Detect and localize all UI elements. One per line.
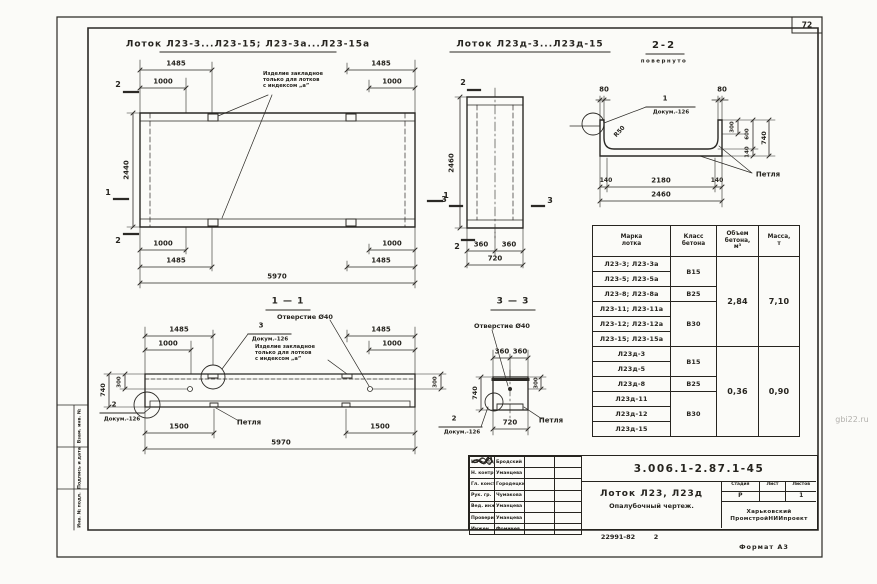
col-header-mass: Масса, т — [759, 226, 800, 257]
dim-label: 740 — [472, 386, 479, 400]
plan-embedded-plates — [208, 114, 356, 226]
document-number: 3.006.1-2.87.1-45 — [581, 456, 816, 482]
dim-label: 2460 — [449, 153, 456, 172]
col-header-volume: Объем бетона, м³ — [717, 226, 759, 257]
callout-doc: Докум.-126 — [653, 110, 689, 116]
dim-label: 1000 — [382, 79, 401, 86]
dim-label: 1485 — [371, 327, 390, 334]
sec11-embedded-note: Изделие закладное только для лотков с ин… — [255, 344, 315, 363]
organization-name: Харьковский ПромстройНИИпроект — [722, 502, 816, 529]
stage-header: Стадия — [722, 482, 760, 491]
callout-number: 2 — [452, 416, 457, 423]
mark-cell: Л23д-15 — [593, 422, 671, 437]
sec33-hole — [508, 387, 512, 391]
class-cell: В15 — [671, 257, 717, 287]
section-mark-3: 3 — [547, 197, 553, 205]
margin-label: Подпись и дата — [79, 447, 84, 489]
margin-label: Инв. № подл. — [79, 492, 84, 528]
table-row: Л23-3; Л23-3а В15 2,84 7,10 — [593, 257, 800, 272]
dim-label: 600 — [745, 128, 751, 139]
name-cell: Уманцева — [495, 501, 525, 512]
loop-label: Петля — [539, 418, 563, 425]
dim-label: 1485 — [371, 258, 390, 265]
drawing-title-cell: Лоток Л23, Л23д Опалубочный чертеж. — [581, 482, 721, 528]
dim-label: 140 — [711, 178, 724, 184]
dim-label: 1485 — [166, 61, 185, 68]
mark-cell: Л23-12; Л23-12а — [593, 317, 671, 332]
dim-label: 1000 — [158, 341, 177, 348]
class-cell: В25 — [671, 377, 717, 392]
drawing-subtitle: Опалубочный чертеж. — [582, 502, 721, 510]
dim-label: 80 — [599, 87, 609, 94]
section-mark-2: 2 — [115, 81, 121, 89]
callout-number: 3 — [259, 323, 264, 330]
margin-strip-lines — [57, 405, 88, 530]
role-cell: Инжен — [470, 524, 495, 535]
role-cell: Н. контр — [470, 468, 495, 479]
callout-doc: Докум.-126 — [444, 430, 480, 436]
lotok-spec-table: Марка лотка Класс бетона Объем бетона, м… — [592, 225, 800, 437]
drawing-title: Лоток Л23, Л23д — [582, 489, 721, 499]
page-number: 72 — [802, 21, 812, 29]
mark-cell: Л23-15; Л23-15а — [593, 332, 671, 347]
stamp-doc-small: 22991-82 — [601, 534, 635, 541]
role-cell: Проверил — [470, 512, 495, 523]
class-cell: В30 — [671, 392, 717, 437]
mark-cell: Л23-8; Л23-8а — [593, 287, 671, 302]
volume-cell: 2,84 — [717, 257, 759, 347]
watermark: gbi22.ru — [835, 416, 868, 424]
dim-label: 360 — [495, 349, 510, 356]
title-block: Нач. отдБродский Н. контрУманцева Гл. ко… — [468, 455, 818, 530]
title-section-1-1: 1 — 1 — [272, 298, 305, 307]
role-cell: Гл. конст — [470, 479, 495, 490]
section-mark-2: 2 — [460, 79, 466, 87]
dim-label: 720 — [488, 256, 503, 263]
dim-label: 1485 — [169, 327, 188, 334]
dim-label: 360 — [502, 242, 517, 249]
name-cell: Фомичев — [495, 524, 525, 535]
margin-label: Взам. инв. № — [79, 409, 84, 444]
loop-label: Петля — [756, 172, 780, 179]
section-mark-2: 2 — [115, 237, 121, 245]
col-header-class: Класс бетона — [671, 226, 717, 257]
dim-label: 2180 — [651, 178, 670, 185]
dim-label: 720 — [503, 420, 518, 427]
section-mark-2: 2 — [454, 243, 460, 251]
name-cell: Городецкий — [495, 479, 525, 490]
title-section-3-3: 3 — 3 — [497, 298, 530, 307]
section-mark-3: 3 — [441, 196, 447, 204]
signature-table: Нач. отдБродский Н. контрУманцева Гл. ко… — [469, 456, 582, 535]
sheet-value — [760, 492, 787, 501]
dim-label: 2460 — [651, 192, 670, 199]
sheet-header: Лист — [760, 482, 787, 491]
role-cell: Рук. гр. — [470, 490, 495, 501]
dim-label: 1000 — [382, 241, 401, 248]
plan-embedded-note: Изделие закладное только для лотков с ин… — [263, 71, 323, 90]
sec11-hole — [368, 387, 373, 392]
mass-cell: 0,90 — [759, 347, 800, 437]
mark-cell: Л23д-12 — [593, 407, 671, 422]
stamp-sheet-small: 2 — [654, 534, 659, 541]
title-main-left: Лоток Л23-3...Л23-15; Л23-3а...Л23-15а — [126, 41, 370, 50]
loop-label: Петля — [237, 420, 261, 427]
dim-label: 80 — [717, 87, 727, 94]
name-cell: Чумакова — [495, 490, 525, 501]
mark-cell: Л23д-8 — [593, 377, 671, 392]
class-cell: В15 — [671, 347, 717, 377]
title-main-mid: Лоток Л23д-3...Л23д-15 — [456, 41, 603, 50]
dim-label: 140 — [745, 146, 751, 157]
section-mark-1: 1 — [105, 189, 111, 197]
dim-label: 5970 — [267, 274, 286, 281]
stage-sheet-grid: Стадия Лист Листов Р 1 Харьковский Промс… — [721, 482, 816, 528]
dim-label: 1485 — [166, 258, 185, 265]
dim-label: 2440 — [124, 160, 131, 179]
sheets-value: 1 — [786, 492, 816, 501]
blueprint-page: Лоток Л23-3...Л23-15; Л23-3а...Л23-15а Л… — [0, 0, 877, 584]
dim-label: 300 — [534, 377, 540, 388]
mass-cell: 7,10 — [759, 257, 800, 347]
callout-doc: Докум.-126 — [252, 337, 288, 343]
stage-value: Р — [722, 492, 760, 501]
col-header-mark: Марка лотка — [593, 226, 671, 257]
hole-label: Отверстие Ø40 — [474, 323, 530, 330]
sheets-header: Листов — [786, 482, 816, 491]
mark-cell: Л23-3; Л23-3а — [593, 257, 671, 272]
table-row: Л23д-3 В15 0,36 0,90 — [593, 347, 800, 362]
name-cell: Бродский — [495, 457, 525, 468]
dim-label: 1500 — [370, 424, 389, 431]
dim-label: 5970 — [271, 440, 290, 447]
name-cell: Уманцева — [495, 468, 525, 479]
mark-cell: Л23-5; Л23-5а — [593, 272, 671, 287]
mark-cell: Л23-11; Л23-11а — [593, 302, 671, 317]
sec11-detail-circle-2 — [134, 392, 160, 418]
hole-label: Отверстие Ø40 — [277, 314, 333, 321]
dim-label: 360 — [474, 242, 489, 249]
dim-label: 1000 — [382, 341, 401, 348]
callout-number: 2 — [112, 402, 117, 409]
volume-cell: 0,36 — [717, 347, 759, 437]
dim-label: 1485 — [371, 61, 390, 68]
dim-label: 740 — [100, 383, 107, 397]
dim-label: 740 — [761, 131, 768, 145]
dim-label: 300 — [433, 376, 439, 387]
plan-outline — [140, 113, 415, 227]
dim-label: 1000 — [153, 241, 172, 248]
mark-cell: Л23д-3 — [593, 347, 671, 362]
mark-cell: Л23д-5 — [593, 362, 671, 377]
name-cell: Уманцева — [495, 512, 525, 523]
class-cell: В25 — [671, 287, 717, 302]
dim-label: 300 — [730, 121, 736, 132]
label-rotated: повернуто — [641, 59, 688, 65]
format-note: Формат А3 — [739, 544, 789, 551]
title-section-2-2: 2-2 — [652, 41, 676, 51]
callout-number: 1 — [663, 96, 668, 103]
role-cell: Вед. инж — [470, 501, 495, 512]
dim-label: 1500 — [169, 424, 188, 431]
mark-cell: Л23д-11 — [593, 392, 671, 407]
class-cell: В30 — [671, 302, 717, 347]
dim-label: 1000 — [153, 79, 172, 86]
dim-label: 140 — [600, 178, 613, 184]
sec11-detail-circle-3 — [201, 365, 225, 389]
sec11-hole — [188, 387, 193, 392]
dim-label: 360 — [513, 349, 528, 356]
callout-doc: Докум.-126 — [104, 417, 140, 423]
dim-label: 300 — [117, 376, 123, 387]
